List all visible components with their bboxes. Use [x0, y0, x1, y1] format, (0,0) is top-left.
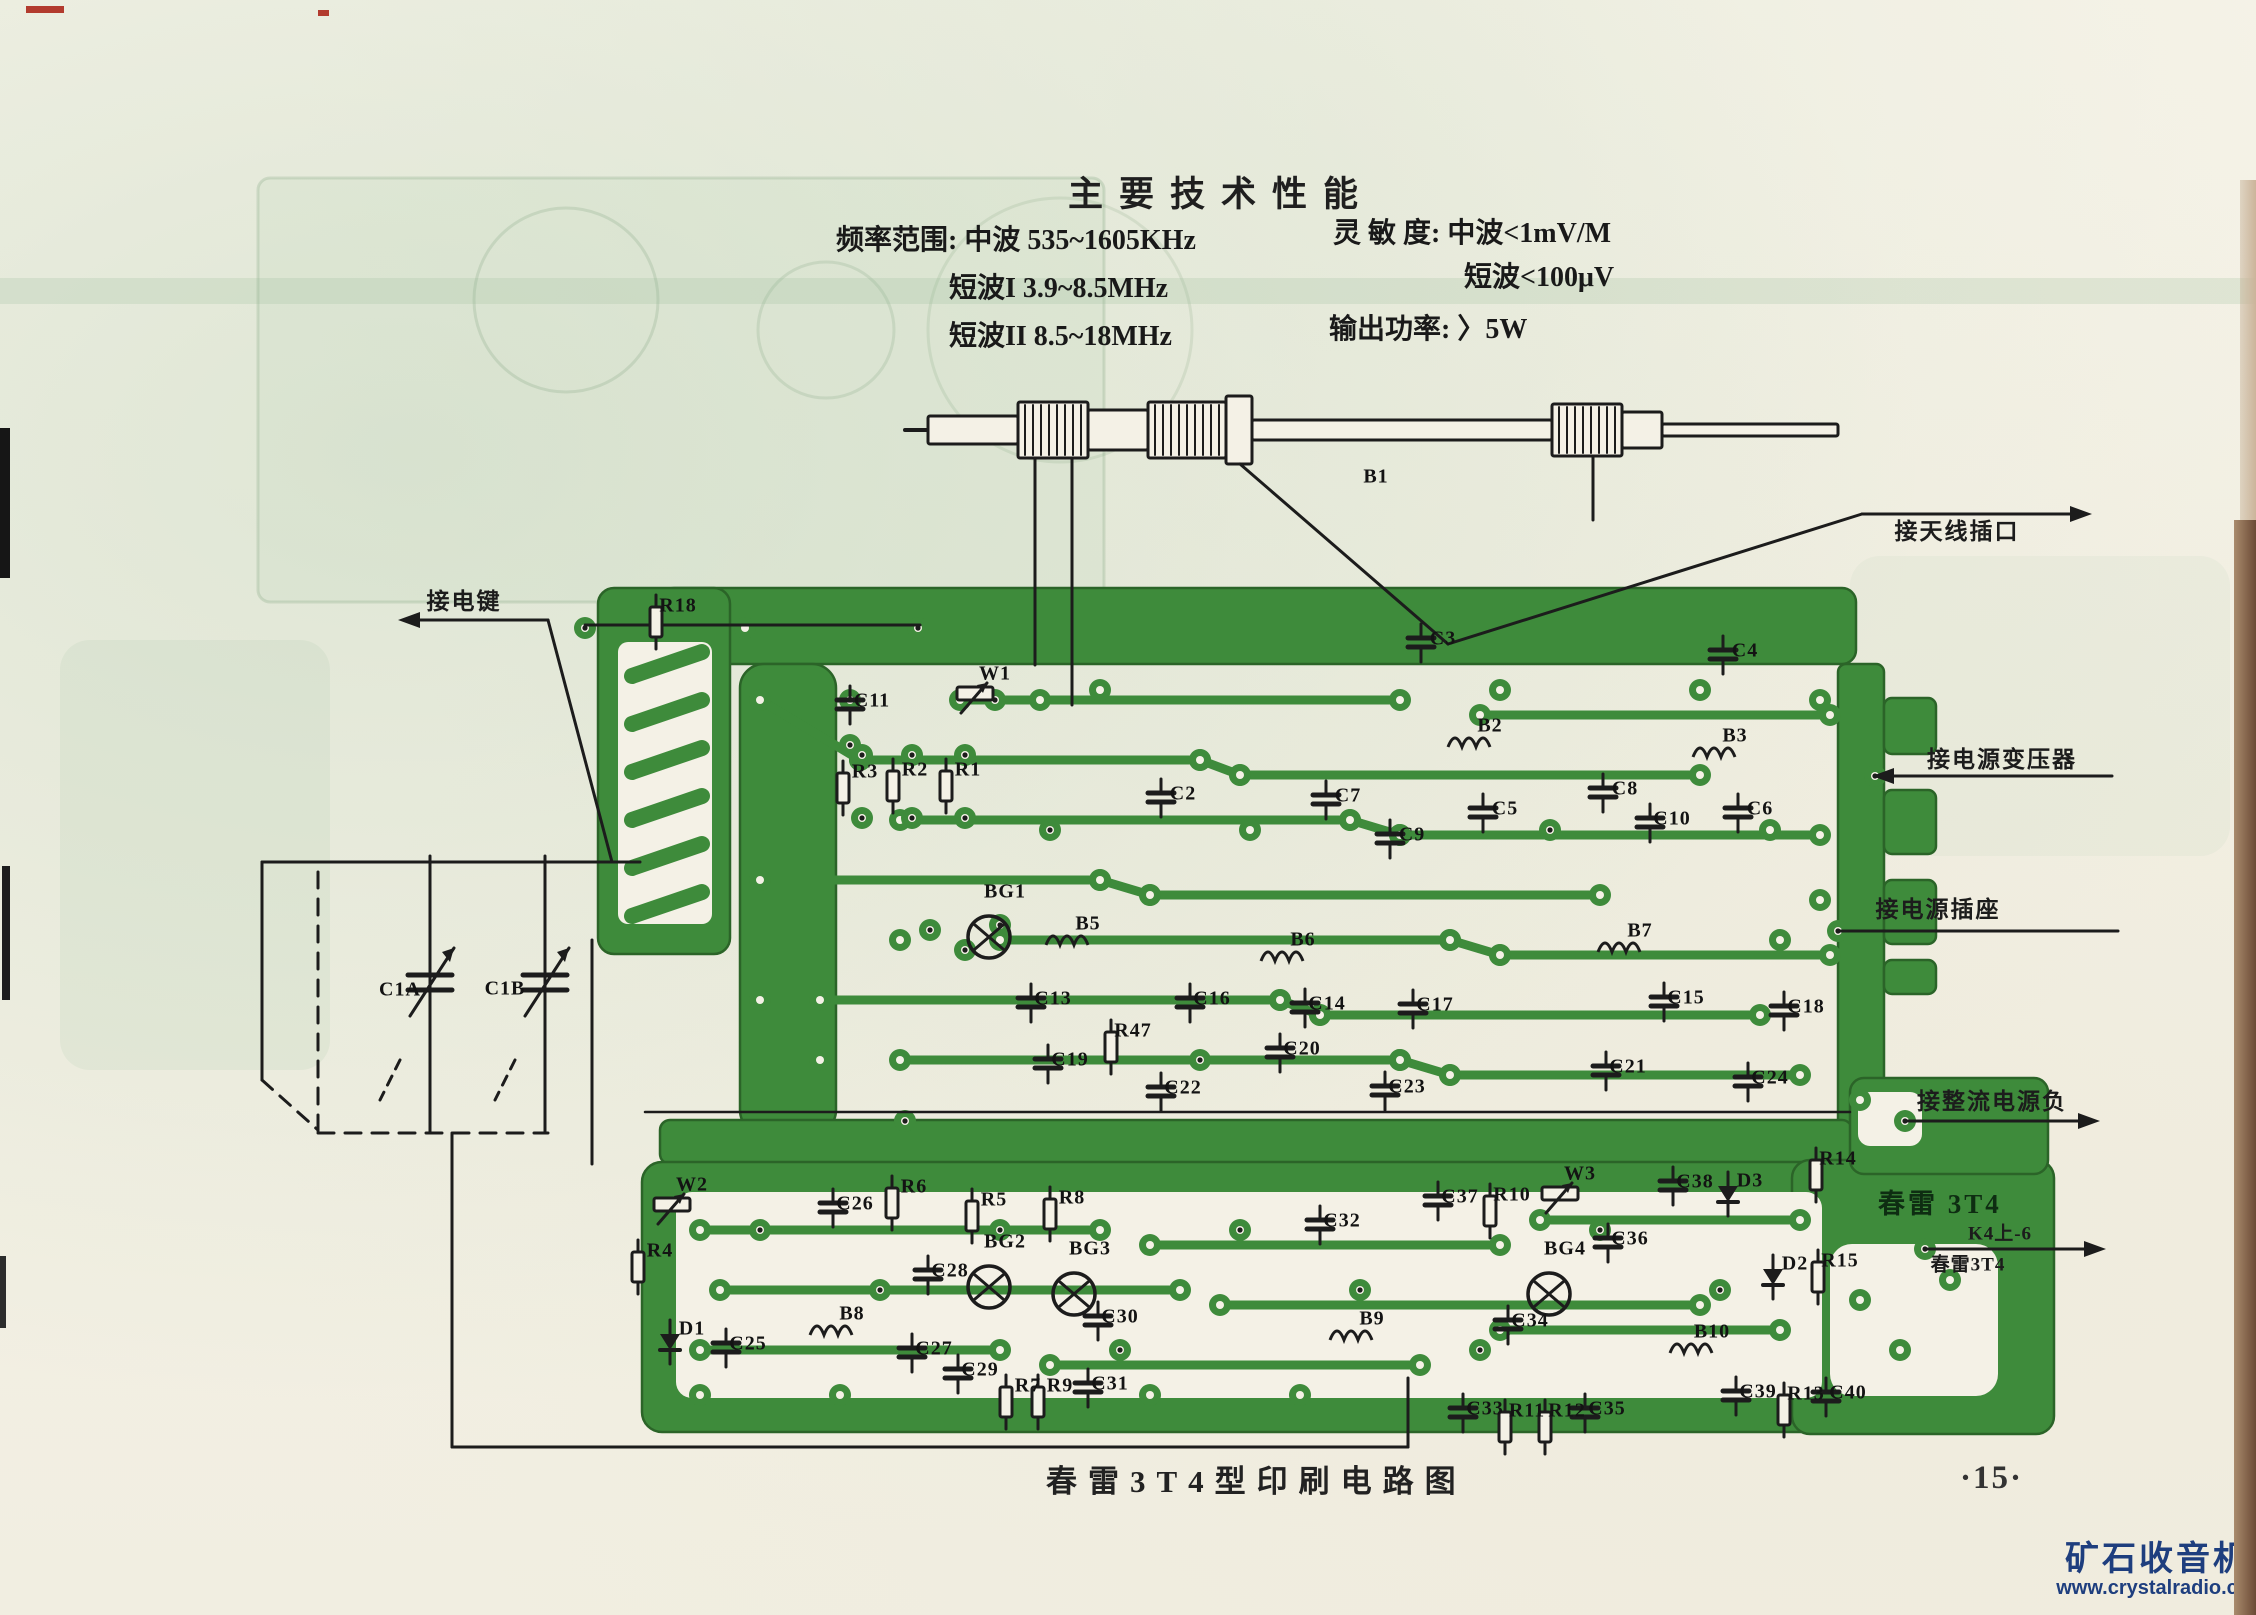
component-label-BG4: BG4 — [1544, 1237, 1586, 1260]
component-label-C9: C9 — [1399, 823, 1425, 846]
component-label-W1: W1 — [979, 662, 1011, 685]
pcb-annotation-3: 接电源插座 — [1876, 890, 2001, 924]
component-label-R8: R8 — [1059, 1186, 1085, 1209]
component-label-BG2: BG2 — [984, 1230, 1026, 1253]
component-label-C28: C28 — [931, 1259, 968, 1282]
component-label-C8: C8 — [1612, 777, 1638, 800]
component-label-C15: C15 — [1667, 986, 1704, 1009]
pcb-annotation-4: 接整流电源负 — [1917, 1082, 2067, 1116]
component-label-R12: R12 — [1548, 1399, 1585, 1422]
watermark-title: 矿石收音机 — [2040, 1542, 2250, 1578]
component-label-C20: C20 — [1283, 1037, 1320, 1060]
figure-caption: 春雷3T4型印刷电路图 — [1046, 1456, 1467, 1501]
scan-edge-artifact — [2, 866, 10, 1000]
component-label-C22: C22 — [1164, 1076, 1201, 1099]
component-label-C31: C31 — [1091, 1372, 1128, 1395]
component-label-C21: C21 — [1609, 1055, 1646, 1078]
component-label-C1A: C1A — [379, 978, 421, 1001]
pcb-annotation-2: 接电源变压器 — [1927, 740, 2077, 774]
component-label-C4: C4 — [1732, 639, 1758, 662]
component-label-C30: C30 — [1101, 1305, 1138, 1328]
component-label-C13: C13 — [1034, 987, 1071, 1010]
component-label-C17: C17 — [1416, 993, 1453, 1016]
scan-edge-shadow — [2234, 520, 2256, 1615]
component-label-R14: R14 — [1819, 1147, 1856, 1170]
watermark-url: www.crystalradio.cn — [2040, 1578, 2250, 1599]
component-label-R1: R1 — [955, 758, 981, 781]
component-label-R2: R2 — [902, 758, 928, 781]
component-label-R11: R11 — [1509, 1399, 1545, 1422]
component-label-W3: W3 — [1564, 1162, 1596, 1185]
component-label-C37: C37 — [1441, 1185, 1478, 1208]
component-label-C6: C6 — [1747, 797, 1773, 820]
component-label-C38: C38 — [1676, 1170, 1713, 1193]
component-label-D2: D2 — [1782, 1252, 1808, 1275]
scanned-manual-page: 主要技术性能 频率范围: 中波 535~1605KHz 短波I 3.9~8.5M… — [0, 0, 2256, 1615]
component-label-B10: B10 — [1694, 1320, 1730, 1343]
component-label-BG1: BG1 — [984, 880, 1026, 903]
component-label-R6: R6 — [901, 1175, 927, 1198]
component-label-B9: B9 — [1359, 1307, 1384, 1330]
component-label-C25: C25 — [729, 1332, 766, 1355]
component-labels-layer: R18C11W1R3R2R1BG1B1C2C3C4B2B3C7C5C9C8C10… — [0, 0, 2256, 1615]
scan-edge-artifact — [318, 10, 329, 16]
component-label-C16: C16 — [1193, 987, 1230, 1010]
component-label-B1: B1 — [1363, 465, 1388, 488]
pcb-annotation-0: 接电键 — [427, 582, 502, 616]
component-label-C1B: C1B — [485, 977, 526, 1000]
component-label-C39: C39 — [1739, 1380, 1776, 1403]
component-label-B5: B5 — [1075, 912, 1100, 935]
scan-edge-artifact — [0, 428, 10, 578]
component-label-R10: R10 — [1493, 1183, 1530, 1206]
component-label-C19: C19 — [1051, 1048, 1088, 1071]
scan-edge-artifact — [0, 1256, 6, 1328]
component-label-B8: B8 — [839, 1302, 864, 1325]
component-label-C36: C36 — [1611, 1227, 1648, 1250]
component-label-W2: W2 — [676, 1173, 708, 1196]
scan-edge-shadow — [2240, 180, 2256, 520]
component-label-C23: C23 — [1388, 1075, 1425, 1098]
component-label-C10: C10 — [1653, 807, 1690, 830]
component-label-R18: R18 — [659, 594, 696, 617]
pcb-annotation-5: K4上-6 — [1968, 1219, 2032, 1246]
component-label-R5: R5 — [981, 1188, 1007, 1211]
page-number: ·15· — [1960, 1460, 2023, 1497]
component-label-R15: R15 — [1821, 1249, 1858, 1272]
component-label-C33: C33 — [1466, 1397, 1503, 1420]
component-label-C7: C7 — [1335, 784, 1361, 807]
component-label-C18: C18 — [1787, 995, 1824, 1018]
component-label-R3: R3 — [852, 760, 878, 783]
component-label-BG3: BG3 — [1069, 1237, 1111, 1260]
component-label-D3: D3 — [1737, 1169, 1763, 1192]
component-label-R7: R7 — [1015, 1374, 1041, 1397]
component-label-R4: R4 — [647, 1239, 673, 1262]
component-label-B2: B2 — [1477, 714, 1502, 737]
watermark: 矿石收音机 www.crystalradio.cn — [2040, 1542, 2250, 1599]
component-label-B3: B3 — [1722, 724, 1747, 747]
component-label-C2: C2 — [1170, 782, 1196, 805]
component-label-R9: R9 — [1047, 1374, 1073, 1397]
component-label-R13: R13 — [1787, 1382, 1824, 1405]
component-label-C14: C14 — [1308, 992, 1345, 1015]
component-label-C27: C27 — [915, 1337, 952, 1360]
component-label-B7: B7 — [1627, 919, 1652, 942]
component-label-C34: C34 — [1511, 1309, 1548, 1332]
component-label-C29: C29 — [961, 1358, 998, 1381]
scan-edge-artifact — [26, 6, 64, 13]
component-label-D1: D1 — [679, 1317, 705, 1340]
component-label-R47: R47 — [1114, 1019, 1151, 1042]
pcb-annotation-6: 春雷3T4 — [1931, 1250, 2006, 1277]
component-label-C24: C24 — [1751, 1066, 1788, 1089]
component-label-C35: C35 — [1588, 1397, 1625, 1420]
component-label-C40: C40 — [1829, 1381, 1866, 1404]
component-label-C32: C32 — [1323, 1209, 1360, 1232]
component-label-B6: B6 — [1290, 928, 1315, 951]
component-label-C11: C11 — [854, 689, 890, 712]
component-label-C3: C3 — [1430, 627, 1456, 650]
pcb-annotation-1: 接天线插口 — [1895, 512, 2020, 546]
component-label-C5: C5 — [1492, 797, 1518, 820]
component-label-C26: C26 — [836, 1192, 873, 1215]
